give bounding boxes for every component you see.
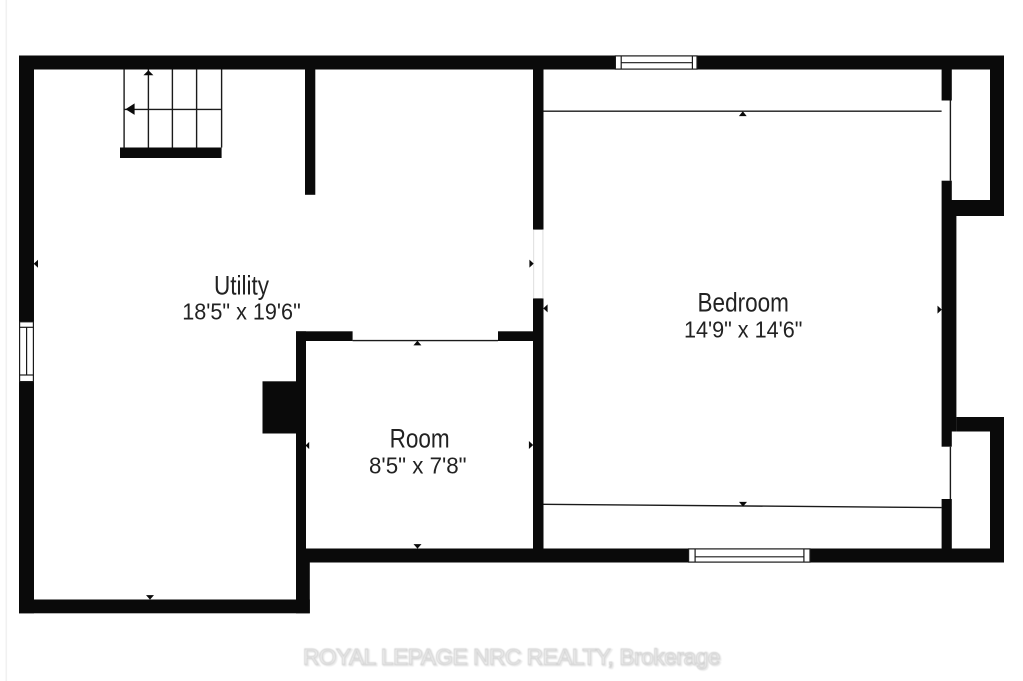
svg-text:18'5" x 19'6": 18'5" x 19'6" — [182, 299, 300, 325]
svg-text:Room: Room — [390, 425, 450, 454]
svg-text:Bedroom: Bedroom — [698, 289, 789, 318]
svg-text:14'9" x 14'6": 14'9" x 14'6" — [684, 317, 802, 343]
svg-text:ROYAL LEPAGE NRC REALTY, Broke: ROYAL LEPAGE NRC REALTY, Brokerage — [303, 645, 720, 670]
svg-text:Utility: Utility — [214, 272, 270, 301]
svg-text:8'5" x 7'8": 8'5" x 7'8" — [369, 452, 467, 479]
